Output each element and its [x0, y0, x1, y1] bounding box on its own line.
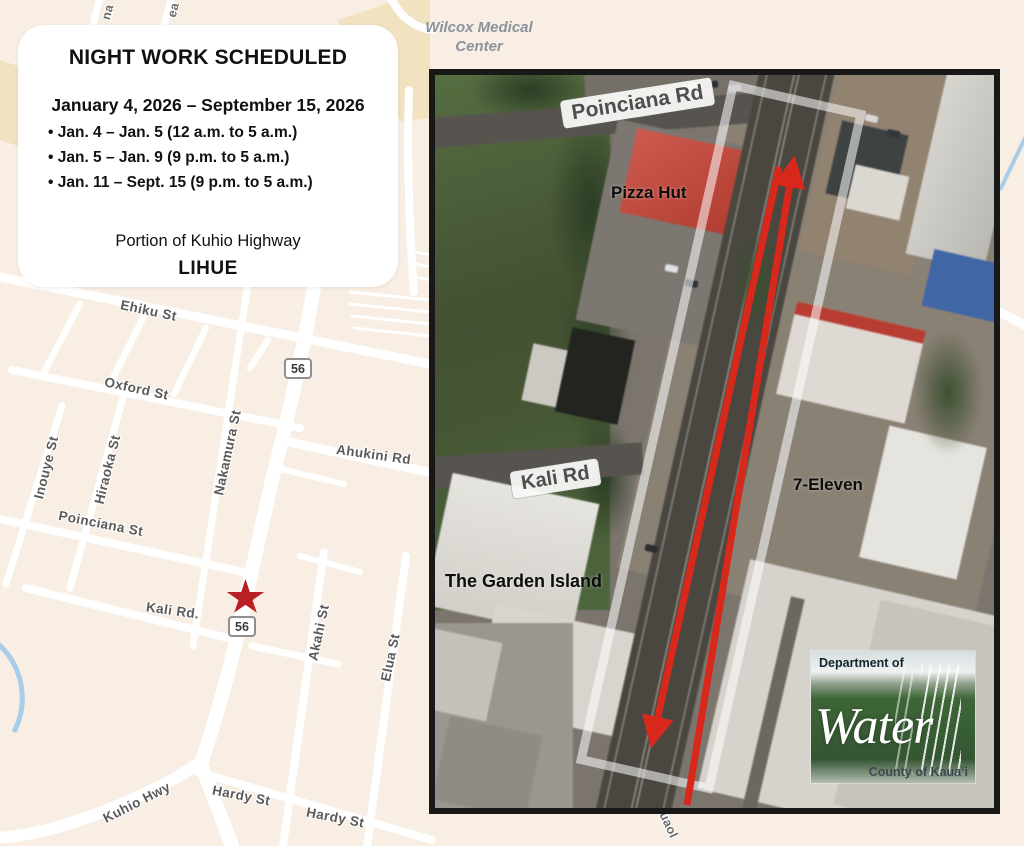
schedule-item: • Jan. 5 – Jan. 9 (9 p.m. to 5 a.m.): [48, 145, 390, 170]
notice-town: LIHUE: [18, 258, 398, 280]
route-56-shield-top: 56: [284, 358, 312, 379]
logo-department-of: Department of: [819, 656, 904, 670]
logo-county-of-kauai: County of Kauaʻi: [869, 765, 968, 779]
schedule-item: • Jan. 11 – Sept. 15 (9 p.m. to 5 a.m.): [48, 170, 390, 195]
inset-label-seven-eleven: 7-Eleven: [793, 475, 863, 495]
inset-label-garden-island: The Garden Island: [445, 571, 602, 592]
flyer-canvas: Wilcox Medical Center Ehiku St Oxford St…: [0, 0, 1024, 846]
notice-area: Portion of Kuhio Highway: [18, 232, 398, 251]
wilcox-label-line1: Wilcox Medical: [404, 18, 554, 37]
schedule-item: • Jan. 4 – Jan. 5 (12 a.m. to 5 a.m.): [48, 120, 390, 145]
route-56-number: 56: [235, 620, 249, 634]
arrow-northbound: [687, 165, 793, 805]
wilcox-label-line2: Center: [404, 37, 554, 56]
notice-card: NIGHT WORK SCHEDULED January 4, 2026 – S…: [18, 25, 398, 287]
notice-schedule-list: • Jan. 4 – Jan. 5 (12 a.m. to 5 a.m.) • …: [48, 120, 390, 195]
route-56-number: 56: [291, 362, 305, 376]
wilcox-medical-center-label: Wilcox Medical Center: [404, 18, 554, 56]
arrow-southbound: [653, 167, 779, 739]
notice-date-range: January 4, 2026 – September 15, 2026: [18, 95, 398, 116]
department-of-water-logo: Department of Water County of Kauaʻi: [811, 651, 975, 783]
satellite-inset: Poinciana Rd Kali Rd Pizza Hut The Garde…: [429, 69, 1000, 814]
notice-title: NIGHT WORK SCHEDULED: [18, 46, 398, 70]
route-56-shield-bottom: 56: [228, 616, 256, 637]
inset-label-pizza-hut: Pizza Hut: [611, 183, 687, 203]
logo-water-wordmark: Water: [815, 697, 932, 756]
